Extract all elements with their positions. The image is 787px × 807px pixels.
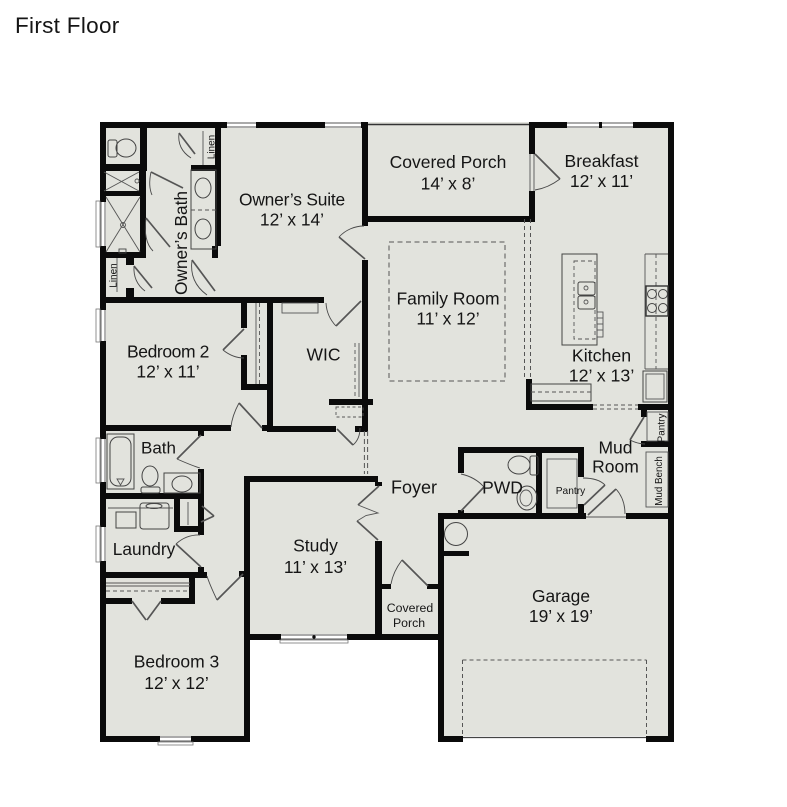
svg-text:12’ x 11’: 12’ x 11’ (570, 171, 633, 191)
svg-text:12’ x 12’: 12’ x 12’ (144, 673, 209, 693)
svg-text:11’ x 12’: 11’ x 12’ (416, 309, 479, 329)
svg-text:12’ x 11’: 12’ x 11’ (136, 362, 199, 382)
svg-text:14’ x 8’: 14’ x 8’ (421, 174, 476, 194)
svg-text:Kitchen: Kitchen (572, 346, 631, 366)
svg-text:Porch: Porch (393, 616, 425, 630)
svg-text:Mud: Mud (598, 438, 632, 458)
svg-text:11’ x 13’: 11’ x 13’ (284, 557, 347, 577)
svg-text:Study: Study (293, 536, 338, 556)
svg-text:Room: Room (592, 457, 639, 477)
svg-text:19’ x 19’: 19’ x 19’ (529, 606, 593, 626)
svg-text:Owner’s Suite: Owner’s Suite (239, 190, 345, 210)
svg-text:Pantry: Pantry (657, 414, 668, 443)
svg-text:Breakfast: Breakfast (565, 151, 639, 171)
svg-text:Family Room: Family Room (396, 289, 499, 309)
svg-text:First Floor: First Floor (15, 13, 120, 38)
svg-text:Laundry: Laundry (113, 539, 176, 559)
svg-text:Linen: Linen (207, 135, 218, 159)
svg-text:Bedroom 3: Bedroom 3 (134, 652, 220, 672)
svg-text:Covered: Covered (387, 601, 434, 615)
svg-text:WIC: WIC (306, 345, 340, 365)
svg-text:Foyer: Foyer (391, 478, 437, 498)
svg-text:Mud Bench: Mud Bench (654, 456, 665, 506)
svg-text:PWD: PWD (482, 478, 523, 498)
svg-text:Garage: Garage (532, 586, 590, 606)
svg-text:Bedroom 2: Bedroom 2 (127, 342, 209, 362)
svg-text:12’ x 13’: 12’ x 13’ (569, 365, 635, 385)
svg-text:12’ x 14’: 12’ x 14’ (260, 209, 324, 229)
svg-text:Pantry: Pantry (556, 486, 586, 497)
svg-text:Covered Porch: Covered Porch (390, 152, 507, 172)
svg-text:Bath: Bath (141, 439, 176, 458)
svg-text:Linen: Linen (109, 263, 120, 287)
svg-text:Owner’s Bath: Owner’s Bath (171, 191, 191, 295)
